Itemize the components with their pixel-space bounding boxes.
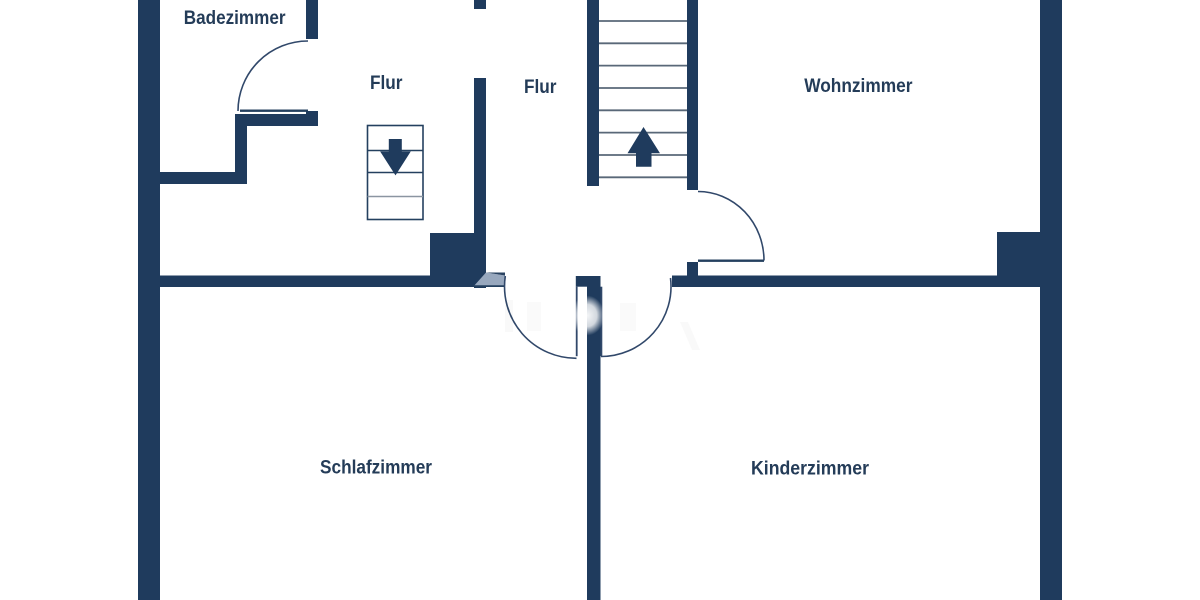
- svg-text:Schlafzimmer: Schlafzimmer: [320, 457, 432, 479]
- svg-text:Wohnzimmer: Wohnzimmer: [804, 75, 913, 97]
- svg-text:Badezimmer: Badezimmer: [184, 7, 286, 29]
- svg-text:Flur: Flur: [370, 72, 403, 94]
- svg-text:Flur: Flur: [524, 76, 557, 98]
- svg-text:Kinderzimmer: Kinderzimmer: [751, 458, 869, 480]
